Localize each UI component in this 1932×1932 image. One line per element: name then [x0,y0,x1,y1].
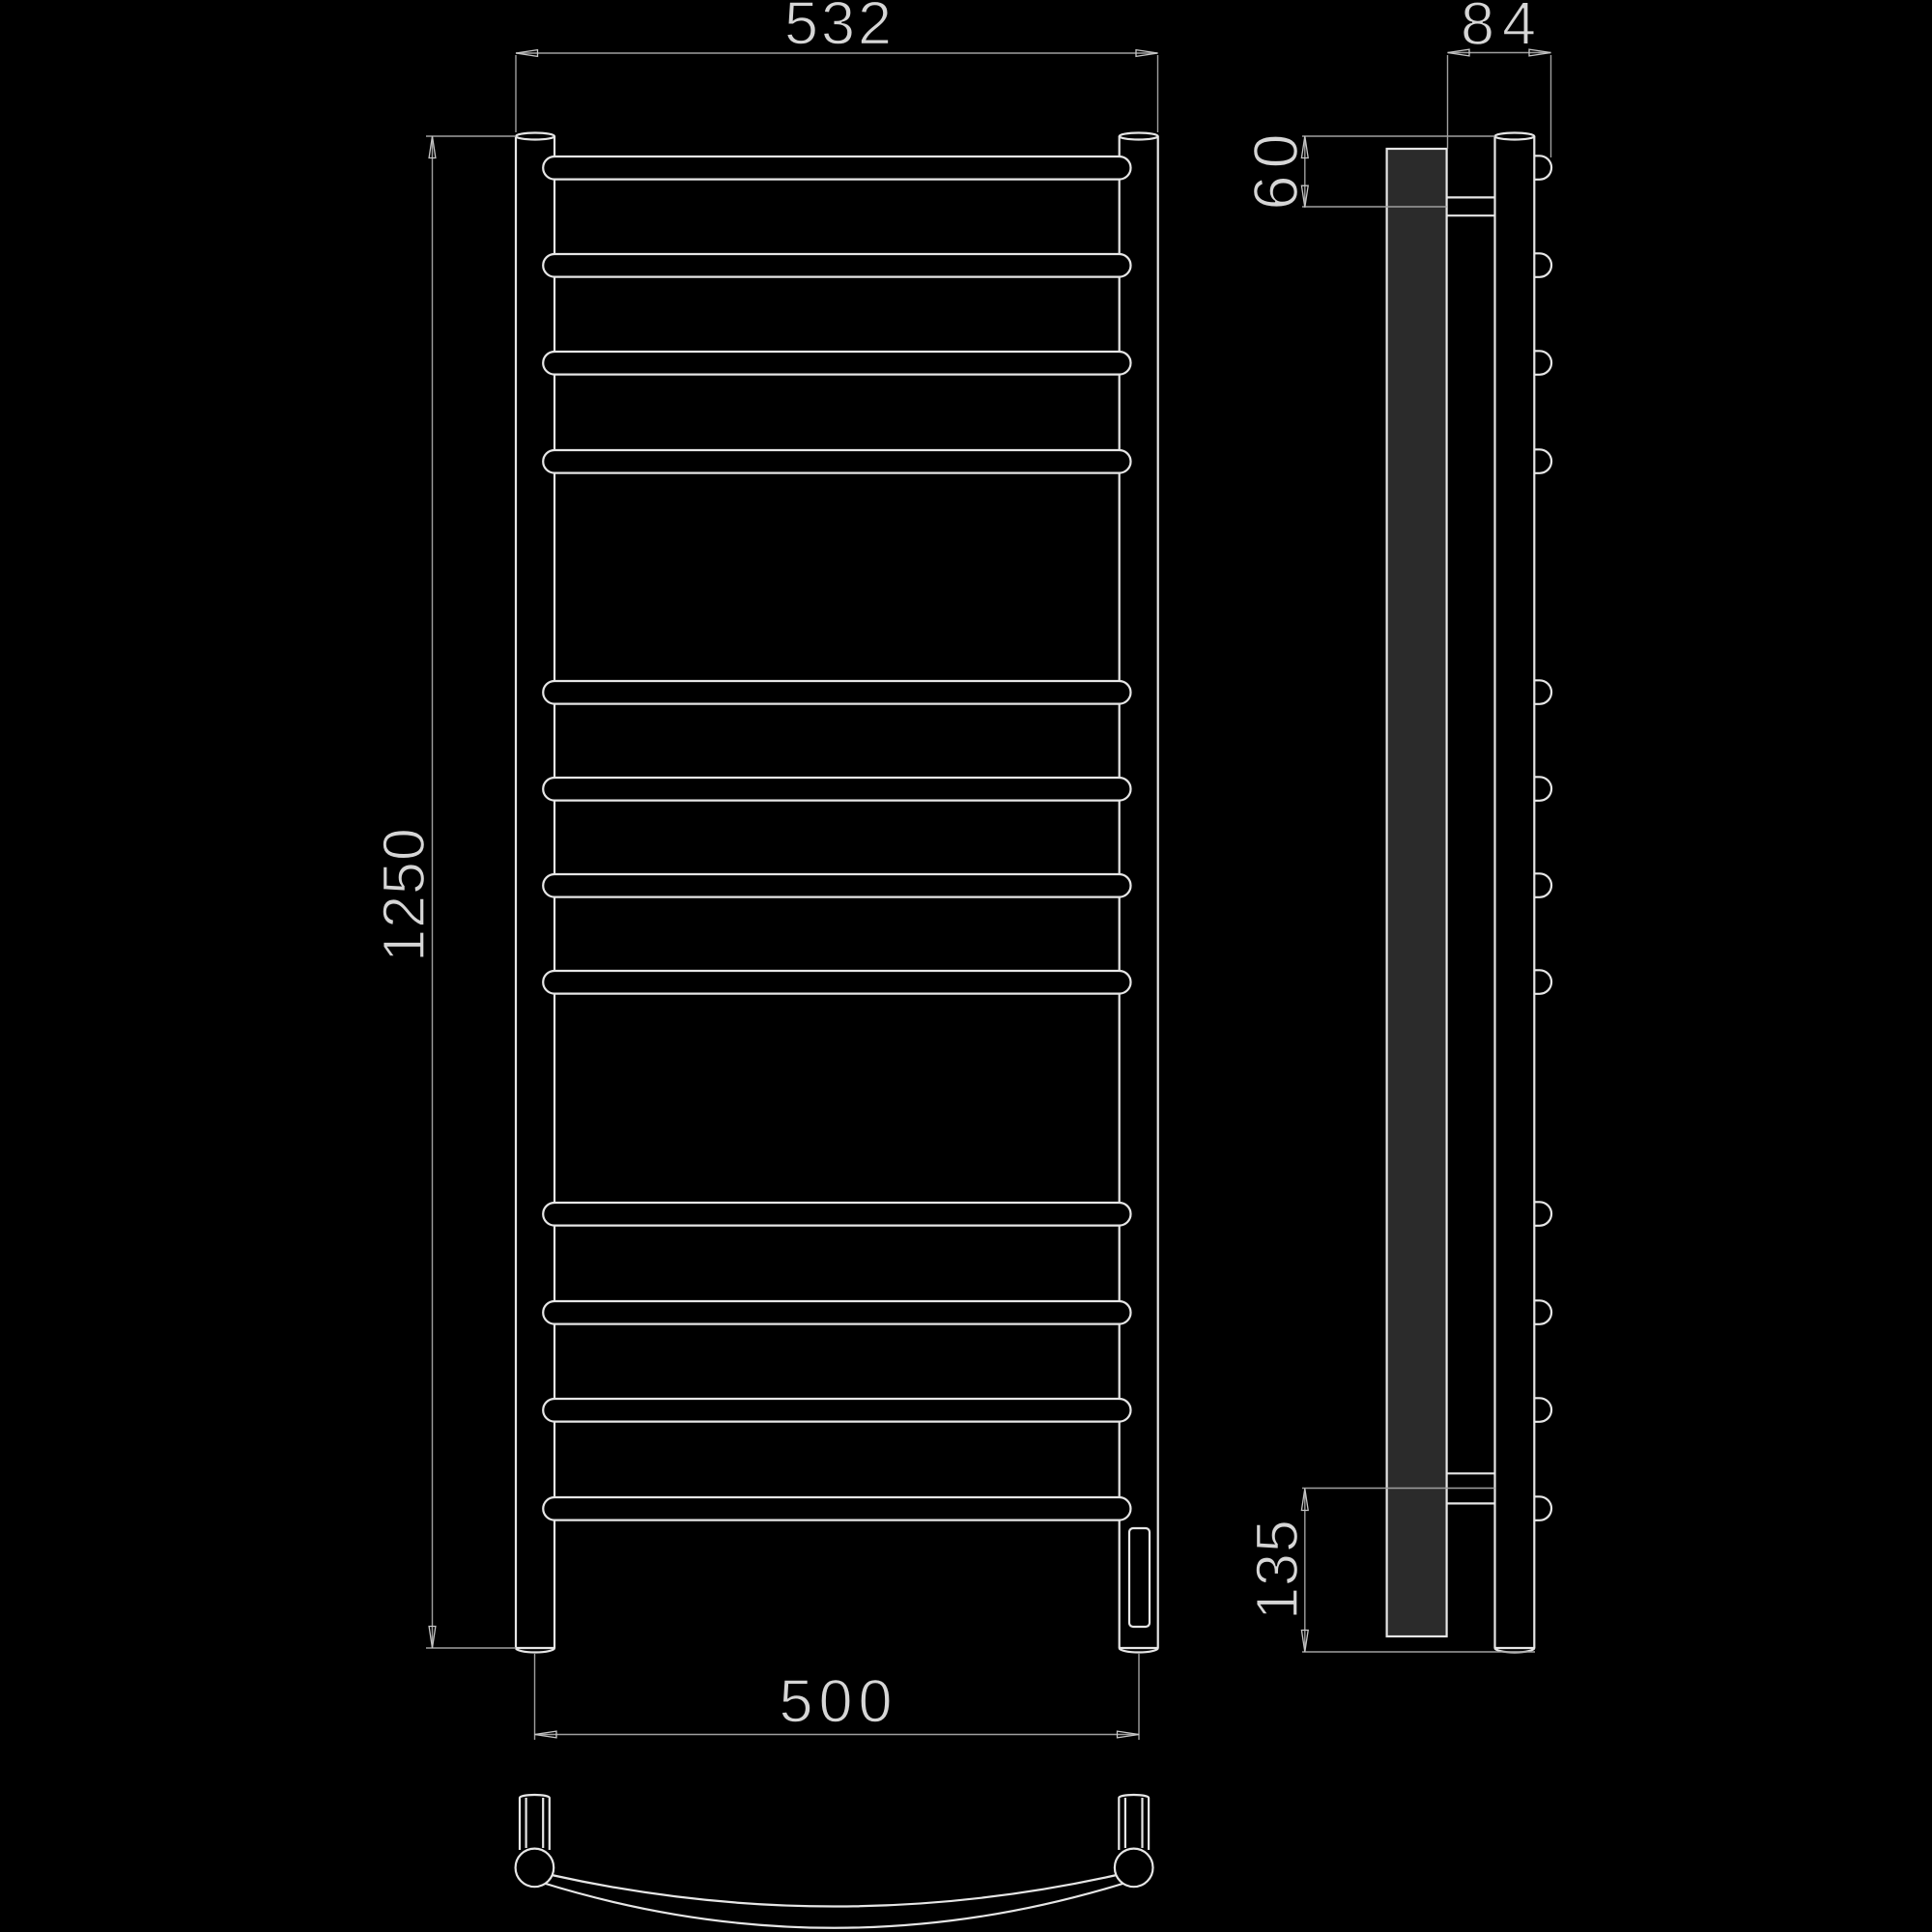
svg-text:135: 135 [1244,1519,1310,1620]
svg-text:532: 532 [784,0,895,58]
svg-text:84: 84 [1461,0,1544,58]
svg-text:500: 500 [779,1668,897,1736]
svg-text:60: 60 [1240,127,1311,210]
svg-text:1250: 1250 [371,827,437,962]
